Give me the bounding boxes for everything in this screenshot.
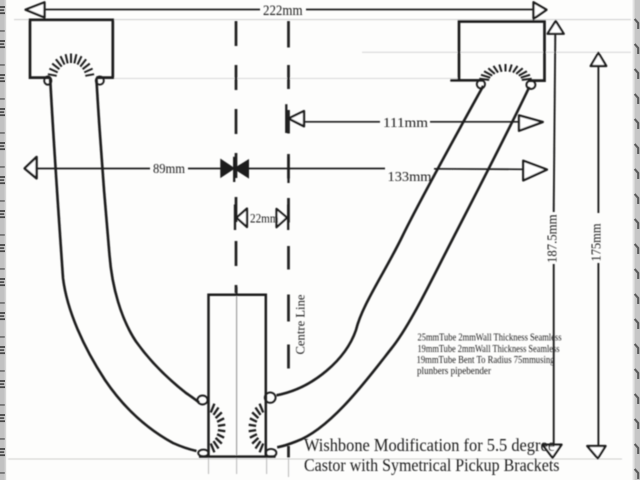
- svg-text:22mm: 22mm: [250, 210, 279, 225]
- svg-text:89mm: 89mm: [153, 161, 185, 176]
- svg-text:187.5mm: 187.5mm: [545, 214, 560, 263]
- svg-text:133mm: 133mm: [388, 169, 433, 184]
- svg-text:Centre Line: Centre Line: [294, 294, 308, 354]
- svg-text:25mmTube 2mmWall Thickness Sea: 25mmTube 2mmWall Thickness Seamless: [418, 332, 562, 344]
- svg-text:19mmTube 2mmWall Thickness Sea: 19mmTube 2mmWall Thickness Seamless: [418, 343, 560, 355]
- svg-text:Wishbone Modification for 5.5: Wishbone Modification for 5.5 degree: [304, 435, 555, 455]
- svg-text:222mm: 222mm: [263, 3, 303, 19]
- svg-text:plunbers pipebender: plunbers pipebender: [417, 365, 491, 377]
- svg-text:175mm: 175mm: [589, 223, 604, 261]
- svg-text:19mmTube Bent To Radius 75mmus: 19mmTube Bent To Radius 75mmusing: [417, 354, 555, 366]
- svg-text:Castor with Symetrical Pickup: Castor with Symetrical Pickup Brackets: [304, 455, 560, 475]
- svg-text:111mm: 111mm: [383, 115, 429, 130]
